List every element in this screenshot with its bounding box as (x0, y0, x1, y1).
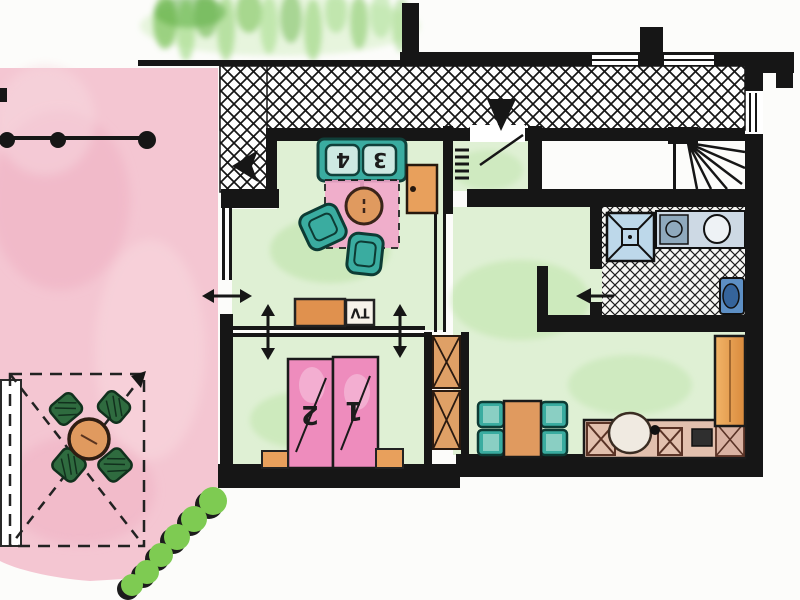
bathroom-left-wall (590, 207, 602, 269)
pergola-beam (0, 136, 150, 140)
cabinet-handle (410, 186, 416, 192)
sofa-seat-4-label: 4 (336, 148, 350, 172)
window-line (664, 59, 714, 61)
sitting-right-wall-line (434, 214, 437, 332)
bedroom-left-wall (220, 314, 233, 476)
floor-blotch (568, 355, 692, 415)
nightstand (262, 451, 288, 468)
bathroom (602, 207, 745, 318)
shower (607, 213, 654, 261)
bed-1-label: 1 (345, 395, 363, 425)
closet-right-wall (461, 332, 469, 458)
sitting-right-wall-line (443, 214, 446, 332)
sitting-left-wall-line (229, 206, 232, 280)
terrace-top-line (138, 60, 402, 66)
foliage-stroke (304, 0, 322, 61)
right-window (745, 91, 763, 134)
window-line (592, 59, 638, 61)
entry-right-wall (528, 126, 542, 192)
round-side-table (346, 188, 382, 224)
partition-wall-line (232, 333, 425, 337)
terrace-texture-blob (95, 240, 205, 460)
chimney-bump (640, 27, 663, 55)
armchair-body (346, 232, 384, 275)
vanity (656, 211, 745, 248)
dining-table (504, 401, 541, 457)
faucet (650, 425, 660, 435)
bathroom-bottom-wall (537, 315, 763, 332)
dining-chair-seat (483, 434, 499, 451)
window-line (749, 93, 751, 132)
window-line (755, 93, 757, 132)
floor-plan-canvas: 4 3 2 1 TV (0, 0, 800, 600)
chimney-stub (402, 3, 419, 53)
bed-2-label: 2 (301, 399, 319, 429)
boundary-mark (0, 88, 7, 102)
nightstand (376, 449, 403, 468)
stair-hub-block (668, 127, 698, 144)
toilet (720, 278, 744, 314)
tv-label: TV (351, 305, 370, 320)
armchair-bottom (346, 232, 384, 275)
strip-right-wall (266, 128, 277, 192)
bed-highlight (299, 367, 325, 403)
built-in-closet (433, 336, 460, 449)
tv-sideboard (295, 299, 345, 326)
closet-left-wall (424, 332, 432, 468)
kitchen-sink (609, 413, 651, 453)
sofa-seat-3-label: 3 (373, 148, 387, 172)
window-gap (745, 91, 763, 134)
shower-drain-dot (628, 235, 632, 239)
sitting-left-wall-line (222, 206, 225, 280)
hatched-wall-band (220, 66, 745, 130)
pergola-post (50, 132, 66, 148)
washing-unit (660, 215, 688, 244)
wing-wall (537, 266, 548, 332)
pergola-post (138, 131, 156, 149)
bush-foliage (121, 574, 143, 596)
washbasin (704, 215, 730, 243)
dining-chair-seat (546, 434, 562, 451)
terrace (0, 65, 218, 581)
wall-end-hook (776, 71, 793, 88)
hatched-left-strip (220, 66, 267, 192)
entry-left-wall (443, 126, 453, 214)
dining-chair-seat (546, 406, 562, 423)
corridor-south-wall (467, 189, 763, 207)
dining-set (478, 401, 567, 457)
dining-chair-seat (483, 406, 499, 423)
stair-divider-line (673, 140, 676, 190)
toilet-bowl (723, 284, 739, 308)
cooktop (692, 429, 712, 446)
